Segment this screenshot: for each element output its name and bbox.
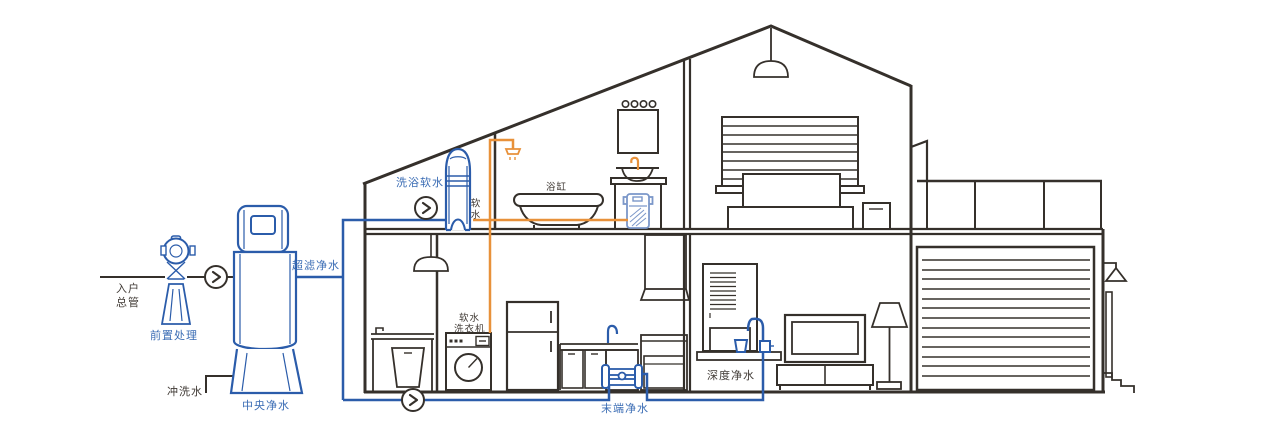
central-purifier-device <box>206 206 302 393</box>
roof-ledge <box>911 141 927 182</box>
outdoor-wall-lamp-icon <box>1103 263 1126 281</box>
garage <box>917 247 1134 393</box>
garage-door-slats <box>922 260 1090 376</box>
bath-softener-tank <box>446 149 470 230</box>
washing-machine <box>446 333 491 390</box>
label-central-purification: 中央净水 <box>242 398 290 412</box>
house-water-system-diagram: 入户 总管 前置处理 中央净水 冲洗水 超滤净水 洗浴软水 软水 浴缸 软水 洗… <box>0 0 1280 434</box>
pendant-lamp-shade <box>754 61 788 77</box>
flow-arrow-icon <box>415 197 437 219</box>
label-ultrafiltration: 超滤净水 <box>292 258 340 272</box>
label-inlet-main-line2: 总管 <box>116 295 140 309</box>
nightstand <box>863 203 890 229</box>
label-flush-water: 冲洗水 <box>167 384 203 398</box>
refrigerator <box>507 302 558 390</box>
label-bath-softening: 洗浴软水 <box>396 175 444 189</box>
downspout <box>1106 292 1112 377</box>
dispenser-tap-fixture <box>760 341 774 352</box>
flow-arrow-icon <box>402 389 424 411</box>
label-washer-line1: 软水 <box>459 312 480 324</box>
mirror-light-bulbs <box>622 101 655 107</box>
range-hood <box>641 235 689 300</box>
shower-head-icon <box>506 149 520 154</box>
diagram-canvas: 入户 总管 前置处理 中央净水 冲洗水 超滤净水 洗浴软水 软水 浴缸 软水 洗… <box>0 0 1280 434</box>
under-sink-heater <box>624 194 653 228</box>
bed-headboard <box>743 174 840 208</box>
tv-stand <box>777 365 873 390</box>
kitchen-sink-faucet <box>608 326 617 343</box>
bathroom <box>514 101 666 230</box>
roof-terrace-railing <box>917 181 1102 229</box>
label-washer-line2: 洗衣机 <box>454 323 486 335</box>
label-terminal-purification: 末端净水 <box>601 401 649 415</box>
label-bathtub: 浴缸 <box>546 181 567 193</box>
bathroom-mirror <box>618 110 658 153</box>
bathtub-bowl <box>520 206 598 225</box>
bed-base <box>728 207 853 229</box>
blinds-slats <box>722 126 858 179</box>
attic-softener-room <box>446 149 470 230</box>
label-pre-treatment: 前置处理 <box>150 328 198 342</box>
utility-lamp-shade <box>414 257 448 271</box>
bathtub-rim <box>514 194 603 206</box>
pre-filter-device <box>161 236 195 324</box>
flow-arrow-icon <box>205 266 227 288</box>
kitchen <box>507 235 689 390</box>
water-bar-counter <box>697 352 781 360</box>
dispenser-cup <box>735 340 747 352</box>
label-soft-water-riser: 软水 <box>469 197 481 221</box>
entry-steps <box>1103 373 1134 393</box>
floor-lamp <box>872 303 907 389</box>
living-room <box>777 303 907 390</box>
label-deep-purification: 深度净水 <box>707 368 755 382</box>
dispenser-vents <box>710 273 736 309</box>
label-inlet-main-line1: 入户 <box>116 281 140 295</box>
bedroom <box>716 28 890 229</box>
laundry-bin <box>392 348 424 387</box>
terminal-ro-filter <box>602 365 642 388</box>
laundry-counter <box>371 328 434 391</box>
